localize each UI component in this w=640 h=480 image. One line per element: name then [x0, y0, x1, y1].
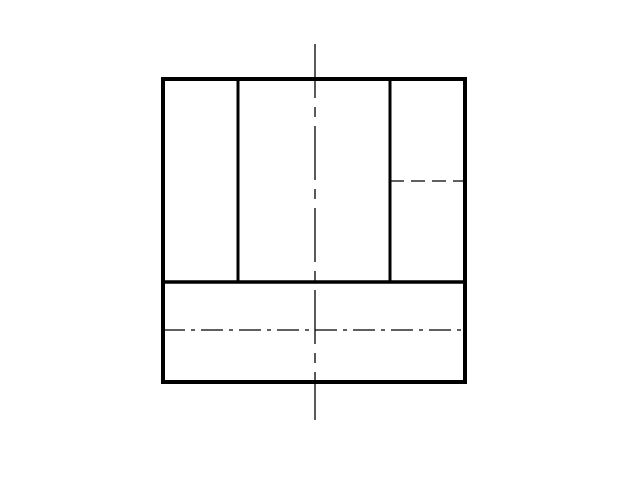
outer-outline: [163, 79, 465, 382]
technical-drawing: [0, 0, 640, 480]
drawing-canvas: [0, 0, 640, 480]
